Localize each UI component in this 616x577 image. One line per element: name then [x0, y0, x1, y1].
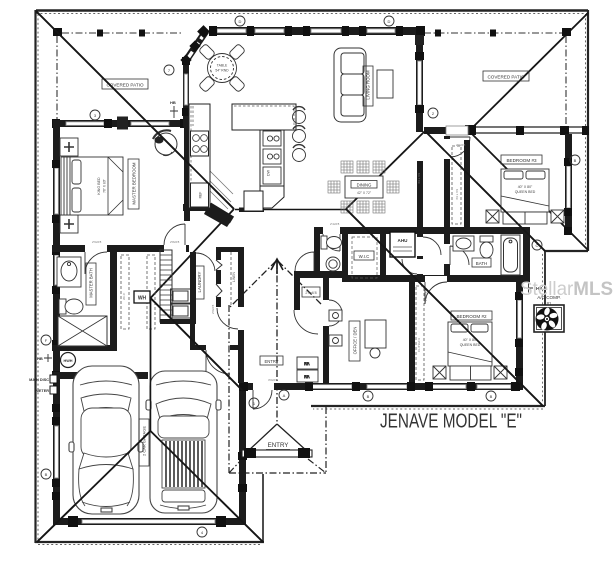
svg-text:2 CAR GARAGE: 2 CAR GARAGE [142, 426, 147, 456]
svg-text:ENTRY: ENTRY [268, 442, 289, 449]
svg-text:JENAVE MODEL "E": JENAVE MODEL "E" [380, 411, 522, 433]
svg-text:2'6x6'8: 2'6x6'8 [424, 291, 428, 301]
svg-text:2'0x6'8: 2'0x6'8 [305, 291, 316, 295]
svg-text:KING BED: KING BED [97, 177, 101, 195]
svg-text:LIVING ROOM: LIVING ROOM [366, 70, 371, 100]
svg-text:40" X 80": 40" X 80" [518, 185, 533, 189]
svg-text:HWH: HWH [63, 359, 72, 363]
svg-text:CL 8'9x1'9: CL 8'9x1'9 [417, 338, 421, 352]
svg-text:4'9 x 6'9: 4'9 x 6'9 [417, 173, 421, 184]
svg-text:2'4x6'8: 2'4x6'8 [330, 222, 340, 226]
svg-text:HB: HB [170, 100, 176, 105]
svg-text:F.P.: F.P. [304, 375, 310, 379]
svg-text:3'0x6'8: 3'0x6'8 [268, 378, 278, 382]
svg-text:HB: HB [37, 356, 43, 361]
svg-text:BEDROOM #3: BEDROOM #3 [506, 158, 537, 163]
svg-text:MAIN DISC: MAIN DISC [29, 378, 49, 382]
svg-text:TABLE: TABLE [217, 64, 228, 68]
svg-text:WH: WH [138, 296, 147, 302]
svg-text:2'8x6'8: 2'8x6'8 [211, 304, 215, 314]
svg-text:42" X 72": 42" X 72" [357, 191, 372, 195]
svg-text:D: D [239, 19, 242, 24]
svg-text:54" RND: 54" RND [215, 69, 229, 73]
svg-text:B: B [574, 158, 577, 163]
svg-text:REF: REF [199, 192, 203, 199]
svg-text:DW: DW [267, 169, 271, 176]
svg-text:LINEN: LINEN [232, 271, 236, 282]
svg-text:76" X 80": 76" X 80" [103, 178, 107, 193]
svg-text:QUEEN BED: QUEEN BED [515, 190, 536, 194]
svg-text:A: A [283, 393, 286, 398]
svg-text:QUEEN BED: QUEEN BED [460, 343, 481, 347]
svg-text:AHU: AHU [398, 238, 409, 243]
svg-text:B: B [490, 394, 493, 399]
svg-text:OFFICE / DEN: OFFICE / DEN [353, 327, 358, 355]
svg-text:COVERED PATIO: COVERED PATIO [487, 75, 525, 80]
svg-text:F.P.: F.P. [304, 362, 310, 366]
svg-text:D: D [388, 19, 391, 24]
svg-text:StellarMLS: StellarMLS [520, 278, 613, 300]
svg-text:B: B [45, 472, 48, 477]
svg-text:ENTRY: ENTRY [264, 359, 278, 364]
svg-text:B: B [367, 394, 370, 399]
svg-text:2'6x6'8: 2'6x6'8 [92, 240, 102, 244]
svg-text:4'9 x 6'9: 4'9 x 6'9 [455, 189, 459, 200]
svg-text:2'8x6'8: 2'8x6'8 [170, 240, 180, 244]
svg-text:METER: METER [36, 389, 50, 393]
svg-text:W.I.C: W.I.C [359, 254, 370, 259]
svg-text:LAUNDRY: LAUNDRY [197, 271, 202, 292]
svg-text:BEDROOM #2: BEDROOM #2 [456, 314, 487, 319]
svg-text:W.I.C: W.I.C [122, 292, 126, 300]
svg-text:DINING: DINING [357, 182, 372, 187]
svg-text:MASTER BEDROOM: MASTER BEDROOM [132, 162, 137, 205]
svg-text:2'6x6'8: 2'6x6'8 [456, 143, 466, 147]
svg-text:MASTER BATH: MASTER BATH [89, 268, 94, 297]
svg-text:BATH: BATH [476, 261, 487, 266]
